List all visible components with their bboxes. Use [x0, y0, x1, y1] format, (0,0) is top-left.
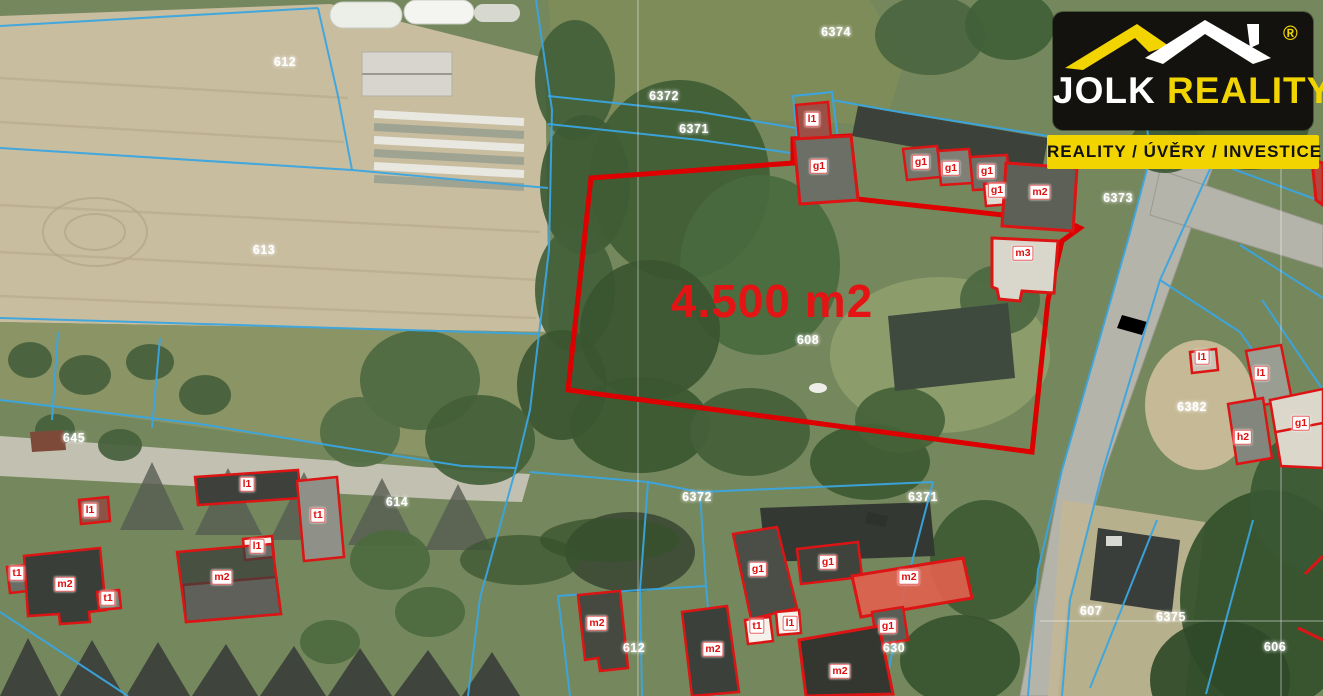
- area-size-label: 4.500 m2: [671, 274, 873, 328]
- agency-logo: ® JOLK REALITY REALITY / ÚVĚRY / INVESTI…: [1047, 8, 1319, 169]
- registered-mark-glyph: ®: [1283, 23, 1298, 45]
- roof-icon: ®: [1053, 12, 1313, 76]
- brand-reality: REALITY: [1167, 70, 1323, 111]
- brand-jolk: JOLK: [1053, 70, 1156, 111]
- aerial-map: 6126374637263716373613608645614638263726…: [0, 0, 1323, 696]
- logo-box: ® JOLK REALITY: [1053, 12, 1313, 130]
- brand-name: JOLK REALITY: [1053, 70, 1313, 112]
- logo-tagline: REALITY / ÚVĚRY / INVESTICE: [1047, 135, 1319, 169]
